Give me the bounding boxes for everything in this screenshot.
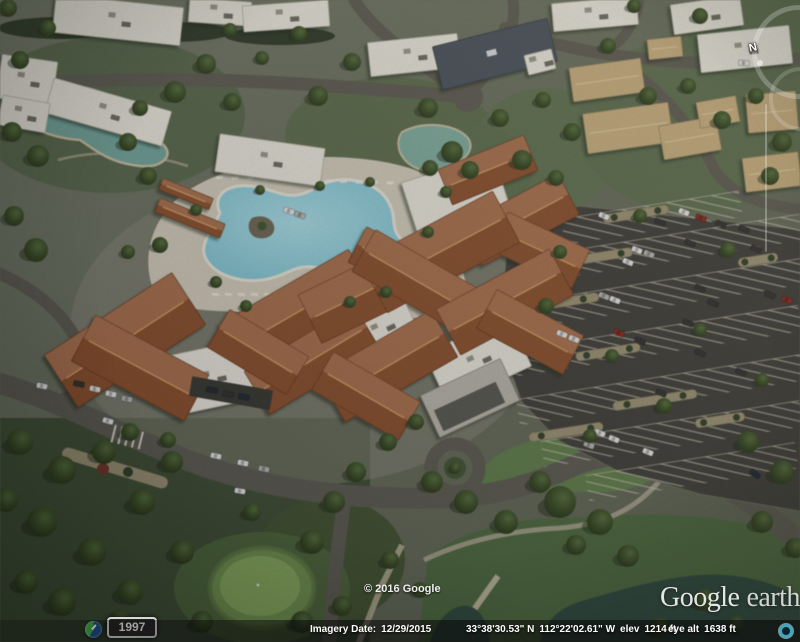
grain-overlay (0, 0, 800, 642)
zoom-slider[interactable] (765, 104, 767, 252)
imagery-date-value: 12/29/2015 (381, 624, 431, 635)
watermark-product: earth (746, 582, 799, 613)
eye-altitude-value: 1638 ft (704, 624, 736, 635)
compass-north-marker[interactable]: N (745, 40, 762, 57)
google-earth-watermark: Googleearth (660, 582, 800, 614)
eye-altitude-label: eye alt (668, 624, 699, 635)
imagery-date-label: Imagery Date: (310, 624, 376, 635)
elevation-label: elev (620, 624, 639, 635)
google-earth-window: N 1997 © 2016 Google Googleearth Imagery… (0, 0, 800, 642)
status-bar: Imagery Date: 12/29/2015 33°38'30.53" N … (0, 620, 800, 642)
satellite-imagery[interactable] (0, 0, 800, 642)
watermark-brand: Google (660, 582, 739, 613)
joystick-dot[interactable] (757, 60, 763, 66)
streaming-indicator-icon (779, 624, 793, 638)
latitude-value: 33°38'30.53" N (466, 624, 534, 635)
longitude-value: 112°22'02.61" W (539, 624, 615, 635)
map-copyright: © 2016 Google (364, 583, 441, 595)
